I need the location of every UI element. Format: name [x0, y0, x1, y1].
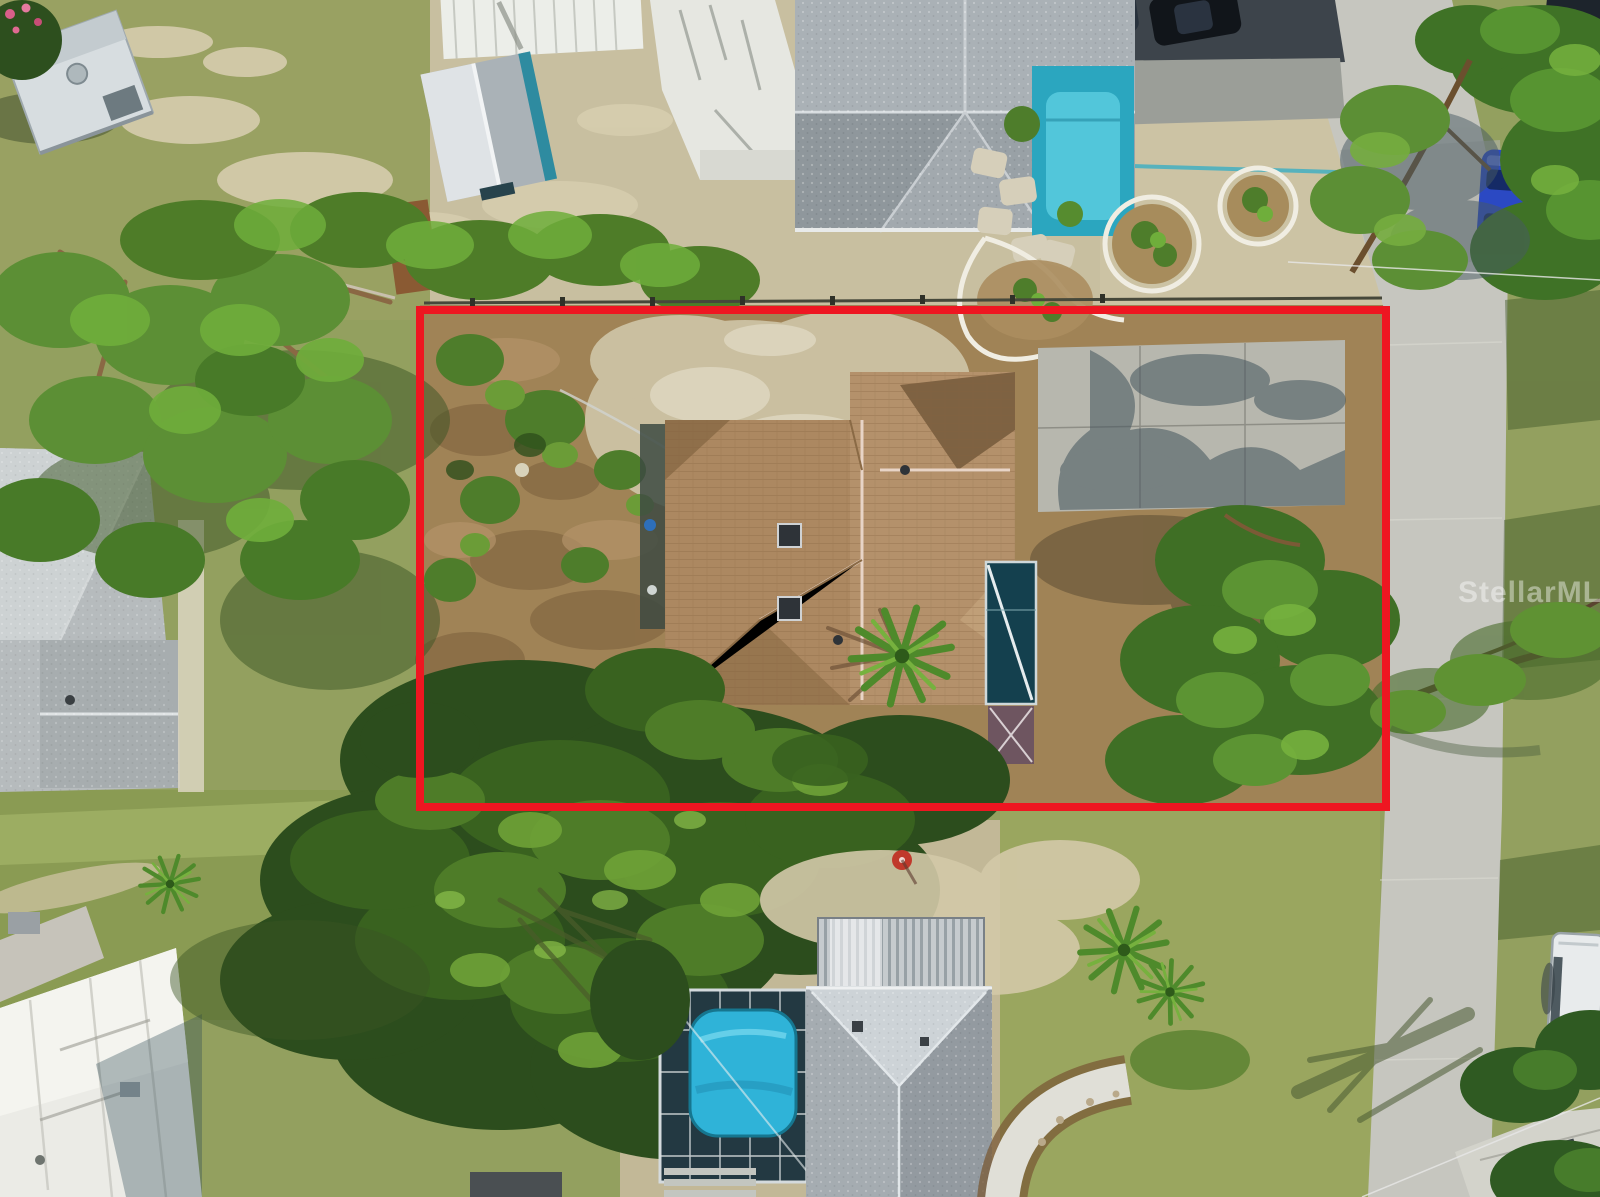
steps: [664, 1168, 756, 1197]
subject-pool-cage: [986, 562, 1036, 764]
aerial-photo: StellarMLS: [0, 0, 1600, 1197]
swimming-pool: [690, 1010, 796, 1136]
metal-roof: [818, 918, 984, 990]
watermark: StellarMLS: [1458, 576, 1600, 609]
bottom-neighbor-house: [806, 986, 992, 1197]
